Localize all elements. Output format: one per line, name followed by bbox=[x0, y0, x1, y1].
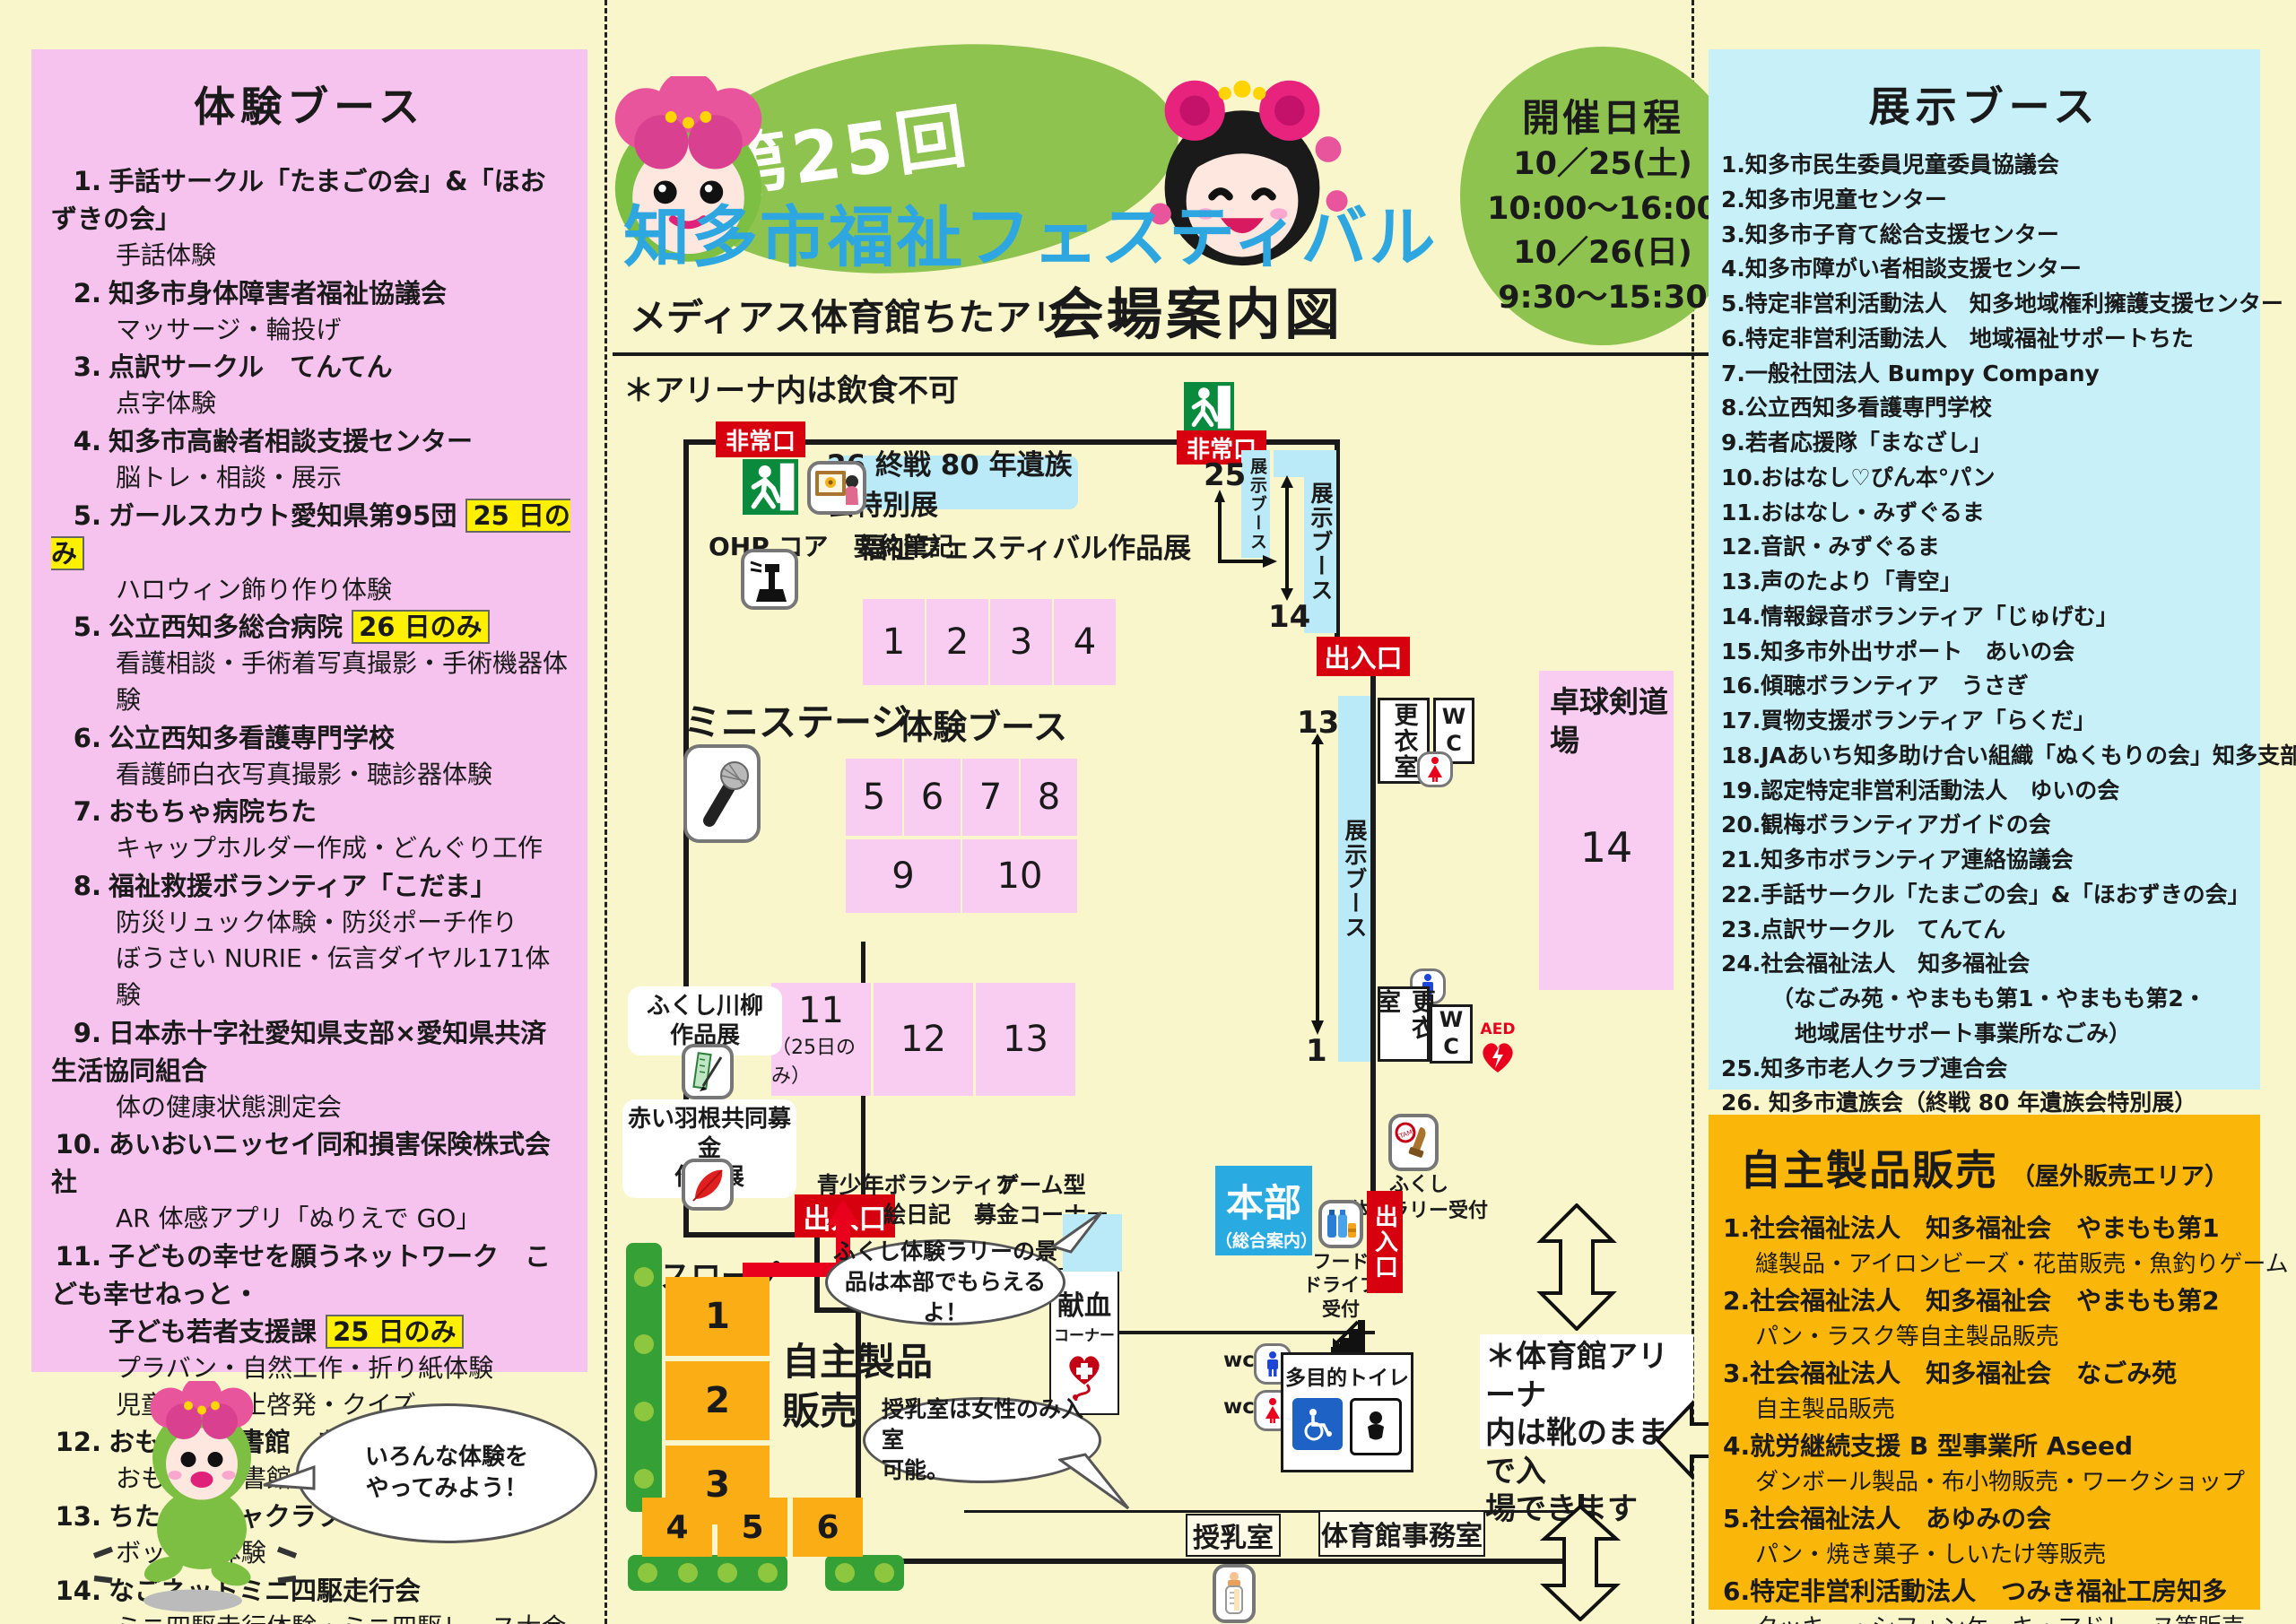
wc-label: wc bbox=[1223, 1395, 1255, 1419]
taiken-booth-label: 体験ブース bbox=[899, 699, 1067, 749]
map-top-border bbox=[613, 352, 1754, 356]
booth-11: 11 （25日のみ） bbox=[771, 983, 871, 1096]
wall bbox=[683, 1232, 802, 1238]
page-title: 知多市福祉フェスティバル bbox=[623, 184, 1438, 280]
schedule-title: 開催日程 bbox=[1460, 47, 1745, 143]
booth-range-arrow bbox=[1308, 734, 1327, 1035]
gym-office: 体育館事務室 bbox=[1318, 1510, 1485, 1557]
list-item: 6.特定非営利活動法人 つみき福祉工房知多 クッキー・シフォンケーキ・マドレーヌ… bbox=[1709, 1573, 2260, 1624]
map-heading: 会場案内図 bbox=[1048, 269, 1344, 350]
list-item: 12.音訳・みずぐるま bbox=[1709, 530, 2260, 565]
list-item: 14.情報録音ボランティア「じゅげむ」 bbox=[1709, 600, 2260, 635]
red-feather-icon bbox=[682, 1159, 734, 1211]
list-item: 23.点訳サークル てんてん bbox=[1709, 913, 2260, 948]
wall bbox=[856, 1559, 1584, 1564]
mascot-speech-bubble: いろんな体験を やってみよう！ bbox=[296, 1403, 597, 1543]
booth-3: 3 bbox=[990, 599, 1052, 685]
booth-7: 7 bbox=[962, 759, 1019, 836]
list-item: 8.福祉救援ボランティア「こだま」 防災リュック体験・防災ポーチ作り ぼうさい … bbox=[51, 867, 571, 1014]
list-item: 3.知多市子育て総合支援センター bbox=[1709, 218, 2260, 253]
wc-label: wc bbox=[1223, 1349, 1255, 1372]
list-item: 19.認定特定非営利活動法人 ゆいの会 bbox=[1709, 774, 2260, 809]
booth-10: 10 bbox=[962, 839, 1077, 913]
list-item: 16.傾聴ボランティア うさぎ bbox=[1709, 669, 2260, 704]
sales-booth-1: 1 bbox=[665, 1277, 770, 1356]
sales-panel-subtitle: （屋外販売エリア） bbox=[2011, 1157, 2229, 1192]
wheelchair-icon bbox=[1292, 1398, 1343, 1450]
flow-arrow-vertical bbox=[1539, 1505, 1622, 1621]
baby-icon bbox=[1350, 1398, 1402, 1455]
list-item: 4.就労継続支援 B 型事業所 Aseed ダンボール製品・布小物販売・ワークシ… bbox=[1709, 1428, 2260, 1500]
ramp bbox=[626, 1243, 662, 1512]
booth-8: 8 bbox=[1021, 759, 1077, 836]
booth-2: 2 bbox=[926, 599, 988, 685]
tanzaku-brush-icon bbox=[682, 1044, 734, 1099]
list-item: 5.社会福祉法人 あゆみの会 パン・焼き菓子・しいたけ等販売 bbox=[1709, 1500, 2260, 1573]
mini-stage-label: ミニステージ bbox=[683, 692, 909, 747]
microphone-icon bbox=[683, 744, 761, 843]
experience-panel-title: 体験ブース bbox=[31, 49, 587, 153]
exit-running-man-icon bbox=[1184, 380, 1234, 434]
list-item: 3.点訳サークル てんてん 点字体験 bbox=[51, 348, 571, 422]
list-item-continued: 地域居住サポート事業所なごみ） bbox=[1709, 1017, 2260, 1052]
nursing-room: 授乳室 bbox=[1186, 1514, 1281, 1557]
booth-4: 4 bbox=[1054, 599, 1116, 685]
exhibit-strip: 展示ブース bbox=[1338, 696, 1370, 1062]
food-drive-icon bbox=[1318, 1200, 1363, 1248]
entrance-label: 出入口 bbox=[1317, 637, 1410, 676]
list-item: 8.公立西知多看護専門学校 bbox=[1709, 391, 2260, 426]
sales-booth-5: 5 bbox=[717, 1498, 787, 1557]
list-item: 4.知多市高齢者相談支援センター 脳トレ・相談・展示 bbox=[51, 422, 571, 497]
list-item: 20.観梅ボランティアガイドの会 bbox=[1709, 808, 2260, 843]
booth-1: 1 bbox=[863, 599, 925, 685]
booth-flow-arrow bbox=[1207, 488, 1288, 578]
sales-panel-title: 自主製品販売 bbox=[1740, 1138, 1998, 1197]
list-item: 2.知多市児童センター bbox=[1709, 183, 2260, 218]
list-item: 1.社会福祉法人 知多福祉会 やまもも第1 縫製品・アイロンビーズ・花苗販売・魚… bbox=[1709, 1210, 2260, 1282]
list-item: 17.買物支援ボランティア「らくだ」 bbox=[1709, 704, 2260, 739]
booth-range-14: 14 bbox=[1268, 599, 1310, 635]
list-item: 5.特定非営利活動法人 知多地域権利擁護支援センター bbox=[1709, 287, 2260, 322]
festival-venue-poster: 体験ブース 1.手話サークル「たまごの会」&「ほおずきの会」 手話体験 2.知多… bbox=[0, 0, 2296, 1624]
bubble-tail bbox=[1051, 1211, 1105, 1254]
ohp-projector-icon bbox=[741, 549, 798, 610]
sales-booth-2: 2 bbox=[665, 1361, 770, 1440]
list-item: 9.日本赤十字社愛知県支部×愛知県共済生活協同組合 体の健康状態測定会 bbox=[51, 1014, 571, 1126]
emergency-exit-label: 非常口 bbox=[716, 421, 805, 457]
booth-number: 14 bbox=[1539, 823, 1674, 872]
list-item: 10.あいおいニッセイ同和損害保険株式会社 AR 体感アプリ「ぬりえで GO」 bbox=[51, 1125, 571, 1238]
entrance-label-vertical: 出入口 bbox=[1367, 1191, 1403, 1293]
aed-station: AED bbox=[1476, 1020, 1519, 1078]
booth-range-1: 1 bbox=[1306, 1033, 1327, 1069]
list-item: 25.知多市老人クラブ連合会 bbox=[1709, 1052, 2260, 1087]
day-badge: 26 日のみ bbox=[352, 610, 489, 644]
sales-booth-6: 6 bbox=[793, 1498, 863, 1557]
list-item-continued: （なごみ苑・やまもも第1・やまもも第2・ bbox=[1709, 982, 2260, 1017]
booth-range-arrow bbox=[1277, 475, 1297, 601]
table-tennis-kendo-area: 卓球剣道 場 14 bbox=[1539, 671, 1674, 990]
list-item: 9.若者応援隊「まなざし」 bbox=[1709, 426, 2260, 461]
planter bbox=[628, 1555, 787, 1591]
list-item: 4.知多市障がい者相談支援センター bbox=[1709, 252, 2260, 287]
multipurpose-toilet: 多目的トイレ bbox=[1281, 1352, 1413, 1472]
blood-heart-icon bbox=[1060, 1345, 1109, 1401]
flow-arrow-vertical bbox=[1535, 1203, 1618, 1331]
changing-room: 更衣室 bbox=[1378, 986, 1430, 1062]
exhibit-booth-panel: 展示ブース 1.知多市民生委員児童委員協議会 2.知多市児童センター 3.知多市… bbox=[1709, 49, 2260, 1090]
booth-12: 12 bbox=[874, 983, 973, 1096]
list-item: 21.知多市ボランティア連絡協議会 bbox=[1709, 843, 2260, 878]
aed-heart-icon bbox=[1478, 1038, 1518, 1074]
exhibit-strip-small bbox=[1274, 450, 1304, 477]
headquarters-box: 本部 （総合案内） bbox=[1215, 1166, 1312, 1255]
list-item: 7.一般社団法人 Bumpy Company bbox=[1709, 357, 2260, 392]
sales-booth-4: 4 bbox=[642, 1498, 712, 1557]
list-item: 5.公立西知多総合病院 26 日のみ 看護相談・手術着写真撮影・手術機器体験 bbox=[51, 608, 571, 718]
no-food-note: ＊アリーナ内は飲食不可 bbox=[623, 366, 959, 410]
product-sales-panel: 自主製品販売 （屋外販売エリア） 1.社会福祉法人 知多福祉会 やまもも第1 縫… bbox=[1709, 1115, 2260, 1610]
list-item: 6.公立西知多看護専門学校 看護師白衣写真撮影・聴診器体験 bbox=[51, 719, 571, 794]
baby-bottle-icon bbox=[1213, 1564, 1256, 1623]
planter bbox=[825, 1555, 904, 1591]
rally-prize-bubble: ふくし体験ラリーの景 品は本部でもらえるよ！ bbox=[825, 1239, 1065, 1325]
list-item: 18.JAあいち知多助け合い組織「ぬくもりの会」知多支部 bbox=[1709, 739, 2260, 774]
picture-exhibit-icon bbox=[807, 461, 866, 515]
list-item: 15.知多市外出サポート あいの会 bbox=[1709, 635, 2260, 670]
wc-room: WC bbox=[1430, 1004, 1473, 1064]
stamp-icon: STAMP bbox=[1388, 1114, 1439, 1171]
list-item: 7.おもちゃ病院ちた キャップホルダー作成・どんぐり工作 bbox=[51, 793, 571, 867]
day25-note: （25日のみ） bbox=[771, 1031, 871, 1089]
booth-5: 5 bbox=[846, 759, 902, 836]
list-item: 22.手話サークル「たまごの会」&「ほおずきの会」 bbox=[1709, 878, 2260, 913]
list-item: 13.声のたより「青空」 bbox=[1709, 565, 2260, 600]
booth-13: 13 bbox=[976, 983, 1075, 1096]
booth-6: 6 bbox=[904, 759, 961, 836]
list-item: 6.特定非営利活動法人 地域福祉サポートちた bbox=[1709, 322, 2260, 357]
booth-9: 9 bbox=[846, 839, 961, 913]
exit-running-man-icon bbox=[743, 459, 798, 515]
bubble-tail bbox=[1058, 1453, 1130, 1514]
list-item: 5.ガールスカウト愛知県第95団 25 日のみ ハロウィン飾り作り体験 bbox=[51, 497, 571, 609]
list-item: 1.手話サークル「たまごの会」&「ほおずきの会」 手話体験 bbox=[51, 162, 571, 274]
list-item: 2.知多市身体障害者福祉協議会 マッサージ・輪投げ bbox=[51, 274, 571, 349]
exhibit-panel-title: 展示ブース bbox=[1709, 49, 2260, 148]
list-item: 2.社会福祉法人 知多福祉会 やまもも第2 パン・ラスク等自主製品販売 bbox=[1709, 1282, 2260, 1355]
wall bbox=[1370, 671, 1376, 1198]
list-item: 10.おはなし♡ぴん本°パン bbox=[1709, 461, 2260, 496]
mascot-running bbox=[90, 1381, 314, 1614]
bubble-tail bbox=[262, 1462, 316, 1498]
list-item: 3.社会福祉法人 知多福祉会 なごみ苑 自主製品販売 bbox=[1709, 1355, 2260, 1428]
day-badge: 25 日のみ bbox=[326, 1315, 463, 1349]
list-item: 24.社会福祉法人 知多福祉会 bbox=[1709, 947, 2260, 982]
list-item: 1.知多市民生委員児童委員協議会 bbox=[1709, 148, 2260, 183]
schedule-circle: 開催日程 10／25(土) 10:00～16:00 10／26(日) 9:30～… bbox=[1460, 47, 1745, 345]
female-icon bbox=[1417, 751, 1453, 787]
list-item: 11.おはなし・みずぐるま bbox=[1709, 496, 2260, 531]
experience-booth-panel: 体験ブース 1.手話サークル「たまごの会」&「ほおずきの会」 手話体験 2.知多… bbox=[31, 49, 587, 1372]
